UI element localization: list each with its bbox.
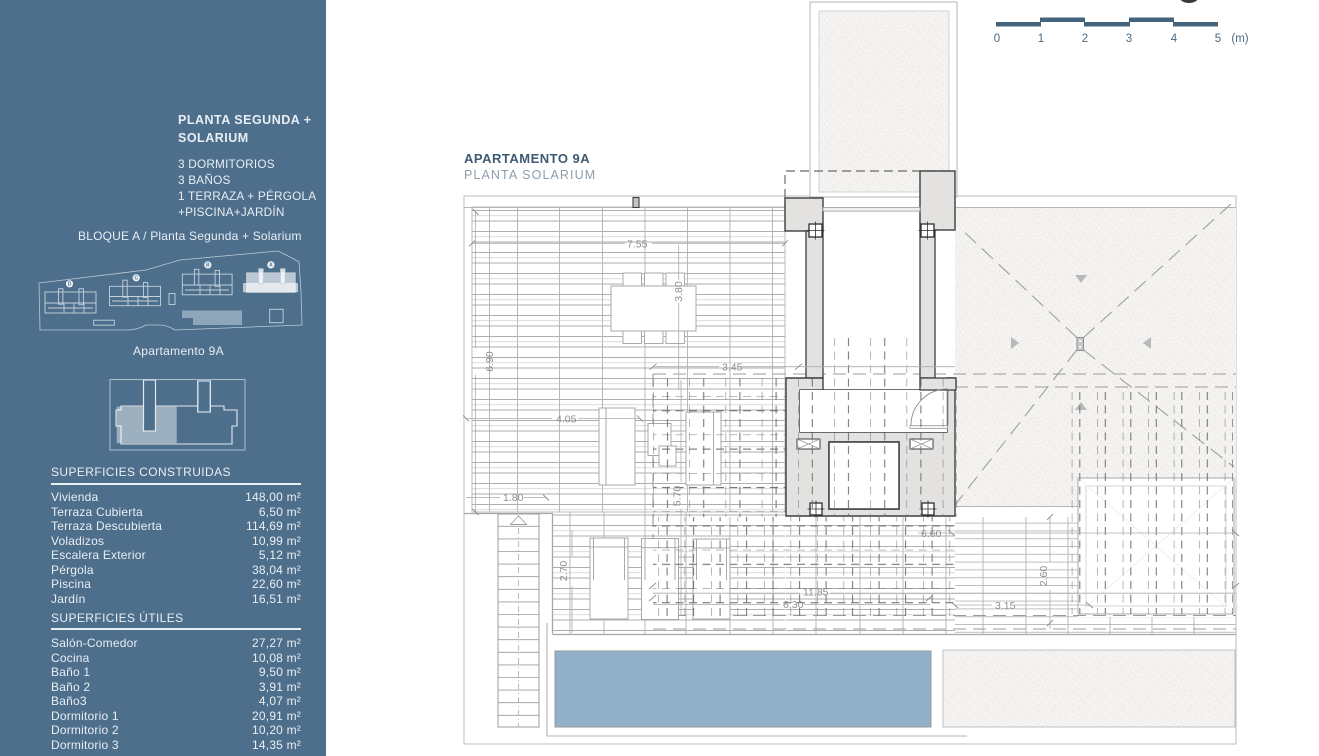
svg-text:11.85: 11.85 xyxy=(803,587,829,599)
svg-text:5: 5 xyxy=(1215,33,1221,45)
svg-text:2: 2 xyxy=(1082,33,1088,45)
svg-text:2.60: 2.60 xyxy=(1038,566,1050,587)
svg-text:2.70: 2.70 xyxy=(558,561,570,582)
svg-text:6.30: 6.30 xyxy=(783,599,804,611)
svg-text:3.15: 3.15 xyxy=(995,600,1016,612)
svg-text:(m): (m) xyxy=(1231,33,1248,45)
svg-text:4.05: 4.05 xyxy=(556,413,577,425)
svg-text:6.90: 6.90 xyxy=(484,351,496,372)
svg-text:1.80: 1.80 xyxy=(503,492,524,504)
svg-text:7.55: 7.55 xyxy=(627,238,648,250)
svg-text:3.45: 3.45 xyxy=(722,362,743,374)
svg-text:3: 3 xyxy=(1126,33,1132,45)
svg-text:6.60: 6.60 xyxy=(921,528,942,540)
svg-text:0: 0 xyxy=(994,33,1000,45)
svg-text:4: 4 xyxy=(1171,33,1178,45)
svg-text:5.70: 5.70 xyxy=(672,486,684,507)
svg-text:3.80: 3.80 xyxy=(673,281,685,302)
svg-text:1: 1 xyxy=(1038,33,1044,45)
